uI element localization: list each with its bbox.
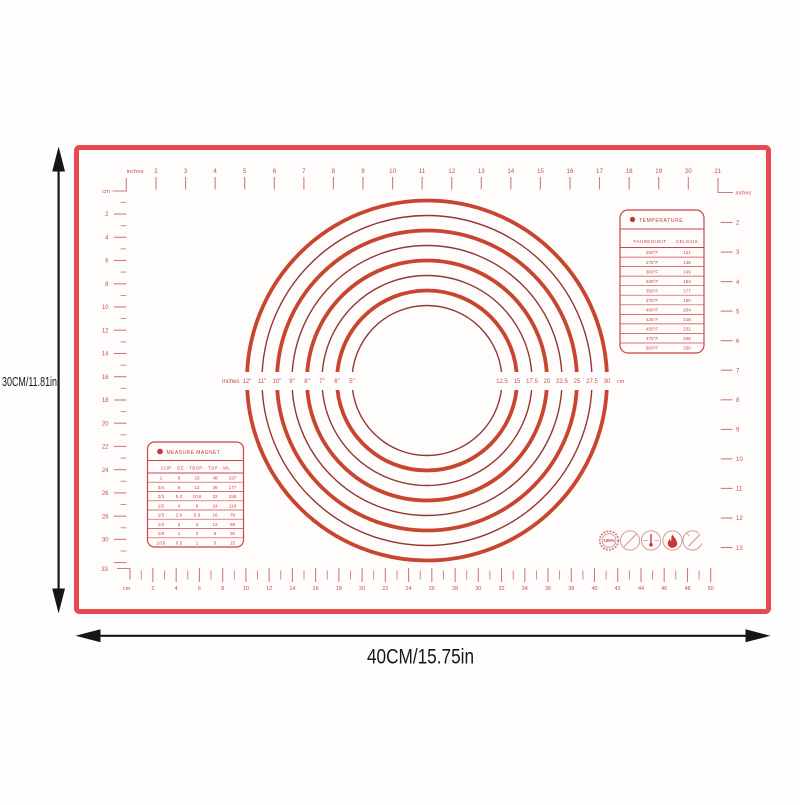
svg-text:3: 3 [184,168,188,175]
svg-text:300°F: 300°F [646,269,659,274]
svg-text:25: 25 [574,379,581,385]
svg-text:15: 15 [537,168,544,175]
svg-text:10: 10 [736,457,743,463]
svg-text:375°F: 375°F [646,298,659,303]
svg-text:10": 10" [273,379,282,385]
svg-text:inches: inches [736,191,752,197]
svg-text:246: 246 [683,336,691,341]
svg-text:325°F: 325°F [646,279,659,284]
svg-text:158: 158 [229,494,237,499]
svg-text:350°F: 350°F [646,288,659,293]
svg-text:27.5: 27.5 [586,379,598,385]
svg-text:24: 24 [406,586,412,592]
svg-text:22: 22 [102,445,109,451]
svg-text:16: 16 [102,375,109,381]
svg-text:TEMPERATURE: TEMPERATURE [639,218,683,224]
svg-text:10: 10 [243,586,249,592]
svg-text:275°F: 275°F [646,260,659,265]
svg-text:1/2: 1/2 [158,503,165,508]
svg-text:79: 79 [230,513,236,518]
svg-text:3/4: 3/4 [158,485,165,490]
svg-text:4: 4 [196,522,199,527]
svg-text:48: 48 [212,476,218,481]
svg-text:22: 22 [382,586,388,592]
svg-text:18: 18 [336,586,342,592]
svg-text:13: 13 [736,546,743,552]
svg-text:1/4: 1/4 [158,522,165,527]
svg-text:11": 11" [258,379,266,385]
svg-text:32: 32 [498,586,504,592]
svg-text:2: 2 [151,586,154,592]
svg-text:26: 26 [102,491,109,497]
svg-text:11: 11 [419,168,426,175]
svg-text:cm: cm [617,379,625,385]
svg-text:1/16: 1/16 [157,540,166,545]
svg-text:30: 30 [604,379,611,385]
svg-text:1: 1 [178,531,181,536]
svg-text:24: 24 [102,468,109,474]
svg-text:CELSIUS: CELSIUS [676,239,698,244]
svg-text:190: 190 [683,298,691,303]
svg-text:44: 44 [638,586,644,592]
svg-text:34: 34 [522,586,528,592]
svg-text:1/3: 1/3 [158,513,165,518]
svg-text:30: 30 [475,586,481,592]
svg-text:121: 121 [683,250,691,255]
svg-text:16: 16 [313,586,319,592]
svg-text:5.3: 5.3 [194,513,201,518]
svg-text:218: 218 [683,317,691,322]
svg-text:17: 17 [596,168,603,175]
svg-text:2: 2 [178,522,181,527]
svg-text:177: 177 [683,288,691,293]
svg-text:MEASURE MAGNET: MEASURE MAGNET [167,450,221,456]
svg-text:6: 6 [214,531,217,536]
svg-text:9: 9 [361,168,365,175]
svg-text:12: 12 [266,586,272,592]
svg-text:425°F: 425°F [646,317,659,322]
svg-text:30: 30 [102,538,109,544]
svg-text:20: 20 [685,168,692,175]
svg-text:24: 24 [212,503,218,508]
svg-text:30: 30 [230,531,236,536]
svg-text:8: 8 [221,586,224,592]
svg-text:FAHRENHEIT: FAHRENHEIT [633,239,666,244]
svg-text:118: 118 [229,503,237,508]
svg-text:16: 16 [567,168,574,175]
svg-text:1/8: 1/8 [158,531,165,536]
svg-text:20: 20 [102,421,109,427]
svg-text:14: 14 [507,168,514,175]
svg-text:475°F: 475°F [646,336,659,341]
svg-text:163: 163 [683,279,691,284]
svg-text:30CM/11.81in: 30CM/11.81in [2,374,57,389]
svg-text:32: 32 [212,494,218,499]
svg-text:6: 6 [178,485,181,490]
svg-text:400°F: 400°F [646,308,659,313]
svg-text:28: 28 [102,514,109,520]
svg-text:10: 10 [389,168,396,175]
svg-text:11: 11 [736,487,743,493]
svg-text:21: 21 [714,168,721,175]
svg-text:8": 8" [304,379,309,385]
svg-text:26: 26 [429,586,435,592]
svg-text:19: 19 [655,168,662,175]
svg-text:7": 7" [319,379,324,385]
svg-text:20: 20 [544,379,551,385]
svg-text:450°F: 450°F [646,327,659,332]
svg-text:16: 16 [212,513,218,518]
svg-text:36: 36 [212,485,218,490]
svg-text:2/3: 2/3 [158,494,165,499]
svg-text:inches: inches [222,379,239,385]
svg-text:204: 204 [683,308,691,313]
svg-text:18: 18 [626,168,633,175]
svg-text:3: 3 [214,540,217,545]
svg-text:2.6: 2.6 [176,513,183,518]
svg-text:6: 6 [273,168,277,175]
svg-text:4: 4 [178,503,181,508]
svg-text:15: 15 [230,540,236,545]
svg-text:15: 15 [514,379,521,385]
svg-text:9": 9" [289,379,294,385]
svg-text:20: 20 [359,586,365,592]
svg-text:36: 36 [545,586,551,592]
svg-text:50: 50 [708,586,714,592]
svg-text:7: 7 [302,168,306,175]
svg-text:149: 149 [683,269,691,274]
svg-text:46: 46 [661,586,667,592]
svg-text:5: 5 [243,168,247,175]
svg-text:100%: 100% [603,538,614,543]
svg-text:18: 18 [102,398,109,404]
svg-text:2: 2 [196,531,199,536]
svg-text:1: 1 [160,476,163,481]
svg-text:40: 40 [591,586,597,592]
svg-text:12: 12 [212,522,218,527]
svg-text:14: 14 [102,352,109,358]
svg-text:38: 38 [568,586,574,592]
svg-text:0.5: 0.5 [176,540,183,545]
svg-text:12: 12 [736,516,743,522]
svg-text:6": 6" [334,379,339,385]
svg-text:2: 2 [154,168,158,175]
svg-text:12: 12 [448,168,455,175]
svg-text:8: 8 [178,476,181,481]
svg-text:8: 8 [332,168,336,175]
svg-text:260: 260 [683,346,691,351]
svg-text:135: 135 [683,260,691,265]
svg-text:6: 6 [198,586,201,592]
svg-text:5": 5" [349,379,354,385]
svg-text:16: 16 [194,476,200,481]
svg-text:12: 12 [194,485,200,490]
svg-text:250°F: 250°F [646,250,659,255]
svg-text:12": 12" [243,379,252,385]
svg-text:17.5: 17.5 [526,379,538,385]
svg-text:232: 232 [683,327,691,332]
svg-text:4: 4 [213,168,217,175]
svg-text:1: 1 [196,540,199,545]
svg-text:inches: inches [127,169,144,175]
svg-text:40CM/15.75in: 40CM/15.75in [367,646,474,669]
svg-text:13: 13 [478,168,485,175]
svg-text:28: 28 [452,586,458,592]
svg-text:33: 33 [101,567,108,573]
svg-text:12.5: 12.5 [496,379,508,385]
svg-text:177: 177 [229,485,237,490]
svg-text:22.5: 22.5 [556,379,568,385]
svg-text:4: 4 [175,586,178,592]
svg-text:8: 8 [196,503,199,508]
svg-text:cm: cm [102,189,110,195]
svg-text:500°F: 500°F [646,346,659,351]
svg-text:12: 12 [102,328,109,334]
svg-text:14: 14 [289,586,295,592]
svg-text:10.6: 10.6 [193,494,202,499]
svg-text:48: 48 [684,586,690,592]
svg-text:237: 237 [229,476,237,481]
svg-text:5.3: 5.3 [176,494,183,499]
svg-text:42: 42 [615,586,621,592]
svg-text:cm: cm [123,586,131,592]
svg-text:10: 10 [102,305,109,311]
svg-text:CUP · OZ · TBSP · TSP · ML: CUP · OZ · TBSP · TSP · ML [161,466,231,472]
svg-text:59: 59 [230,522,236,527]
